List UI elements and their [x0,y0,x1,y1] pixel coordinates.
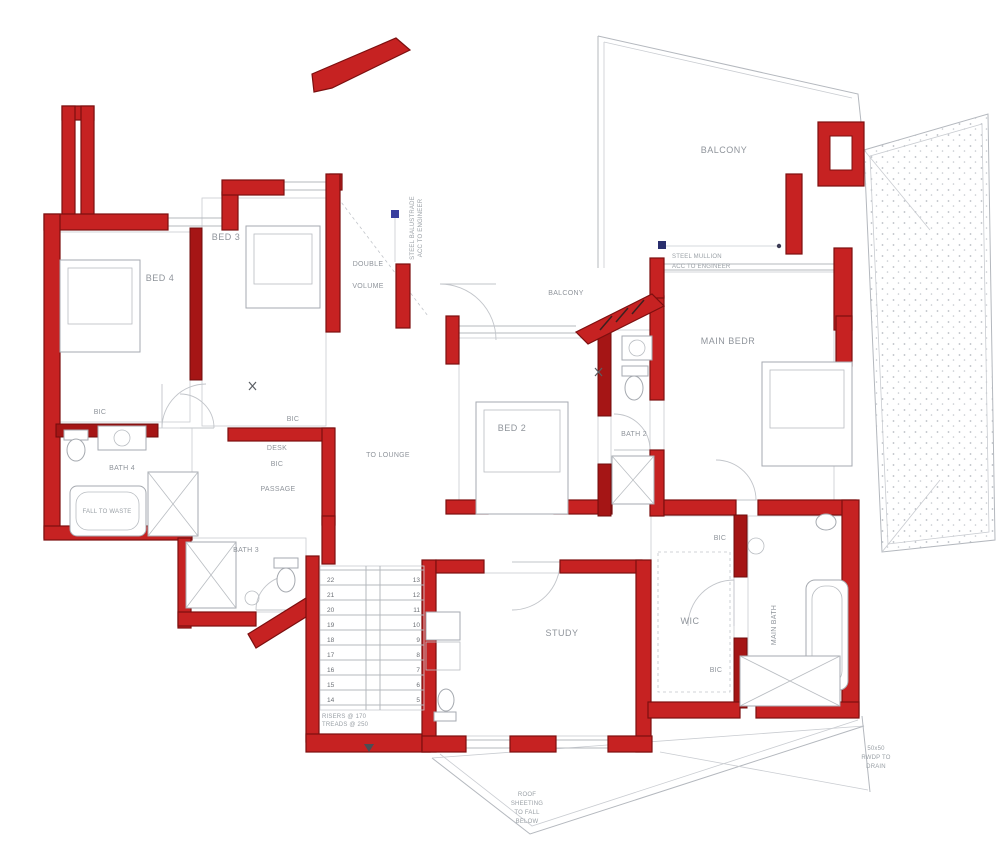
room-label-main-bed: MAIN BEDR [701,336,756,346]
room-label-bed2: BED 2 [498,423,527,433]
floor-plan-canvas: 22 21 20 19 18 17 16 15 14 13 12 11 10 9… [0,0,1000,863]
room-label-study: STUDY [545,628,578,638]
note-bottom-4: BELOW [516,819,539,825]
stair-number: 21 [327,592,335,599]
note-mullion-1: STEEL MULLION [672,254,722,260]
bic-label-wic-top: BIC [714,535,727,542]
stair-number: 18 [327,637,335,644]
bic-label-passage: BIC [271,461,284,468]
stair-number: 9 [416,637,420,644]
stair-number: 13 [413,577,421,584]
stair-note-line2: TREADS @ 250 [322,722,369,728]
stair-number: 11 [413,607,420,614]
stair-number: 12 [413,592,421,599]
shower-icon-bath2 [612,456,654,504]
floor-plan-svg: 22 21 20 19 18 17 16 15 14 13 12 11 10 9… [0,0,1000,863]
bic-label-bed4: BIC [94,409,107,416]
note-balustrade-2: ACC TO ENGINEER [418,198,424,257]
note-bottom-3: TO FALL [514,810,540,816]
label-desk: DESK [267,445,287,452]
toilet-icon-study [434,689,456,721]
note-mullion-2: ACC TO ENGINEER [672,264,731,270]
stair-number: 5 [416,697,420,704]
stair-number: 8 [416,652,420,659]
stair-number: 22 [327,577,335,584]
toilet-icon-main-bath [748,514,836,554]
stair-number: 7 [416,667,420,674]
room-label-balcony-mid: BALCONY [548,290,584,297]
walls [44,106,864,752]
bed-icon-bed3 [246,226,320,308]
label-double-volume-1: DOUBLE [353,261,384,268]
toilet-icon-bath4 [64,426,146,461]
room-label-bath3: BATH 3 [233,547,259,554]
label-double-volume-2: VOLUME [352,283,383,290]
room-label-bed4: BED 4 [146,273,175,283]
stair-number: 20 [327,607,335,614]
note-corner-1: 50x50 [867,746,885,752]
room-label-balcony-top: BALCONY [701,145,748,155]
room-label-bath2: BATH 2 [621,431,647,438]
basin-icon-bath2 [622,336,652,360]
note-balustrade-1: STEEL BALUSTRADE [410,196,416,260]
stair-number: 17 [327,652,335,659]
switch-glyphs [249,368,602,390]
balustrade-marker-icon [391,210,399,218]
stair-number: 19 [327,622,335,629]
staircase: 22 21 20 19 18 17 16 15 14 13 12 11 10 9… [320,566,424,752]
room-label-passage: PASSAGE [260,486,295,493]
stair-number: 6 [416,682,420,689]
label-to-lounge: TO LOUNGE [366,452,410,459]
bed-icon-main-bed [762,362,852,466]
stair-number: 15 [327,682,335,689]
shower-icon-main-bath [740,656,840,706]
shower-icon-bath4 [148,472,198,536]
room-label-bath4: BATH 4 [109,465,135,472]
note-corner-2: RWDP TO [861,755,890,761]
stair-number: 10 [413,622,421,629]
north-arrow-wedge [312,38,410,92]
bed-icon-bed2 [476,402,568,514]
room-label-wic: WIC [681,616,700,626]
room-label-bed3: BED 3 [212,232,241,242]
leader-markers [391,210,666,262]
note-bottom-1: ROOF [518,792,536,798]
bed-icon-bed4 [60,260,140,352]
shower-icon-bath3 [186,542,236,608]
bic-label-bed3: BIC [287,416,300,423]
stair-number: 14 [327,697,335,704]
bic-label-wic-bottom: BIC [710,667,723,674]
note-corner-3: DRAIN [866,764,886,770]
room-label-main-bath: MAIN BATH [771,605,778,645]
stair-note-line1: RISERS @ 170 [322,714,367,720]
mullion-marker-icon [658,241,666,249]
toilet-icon-bath2 [622,366,648,400]
terrace-area [864,114,995,552]
note-tub: FALL TO WASTE [83,509,132,515]
note-bottom-2: SHEETING [511,801,543,807]
room-outlines [60,198,842,736]
stair-number: 16 [327,667,335,674]
